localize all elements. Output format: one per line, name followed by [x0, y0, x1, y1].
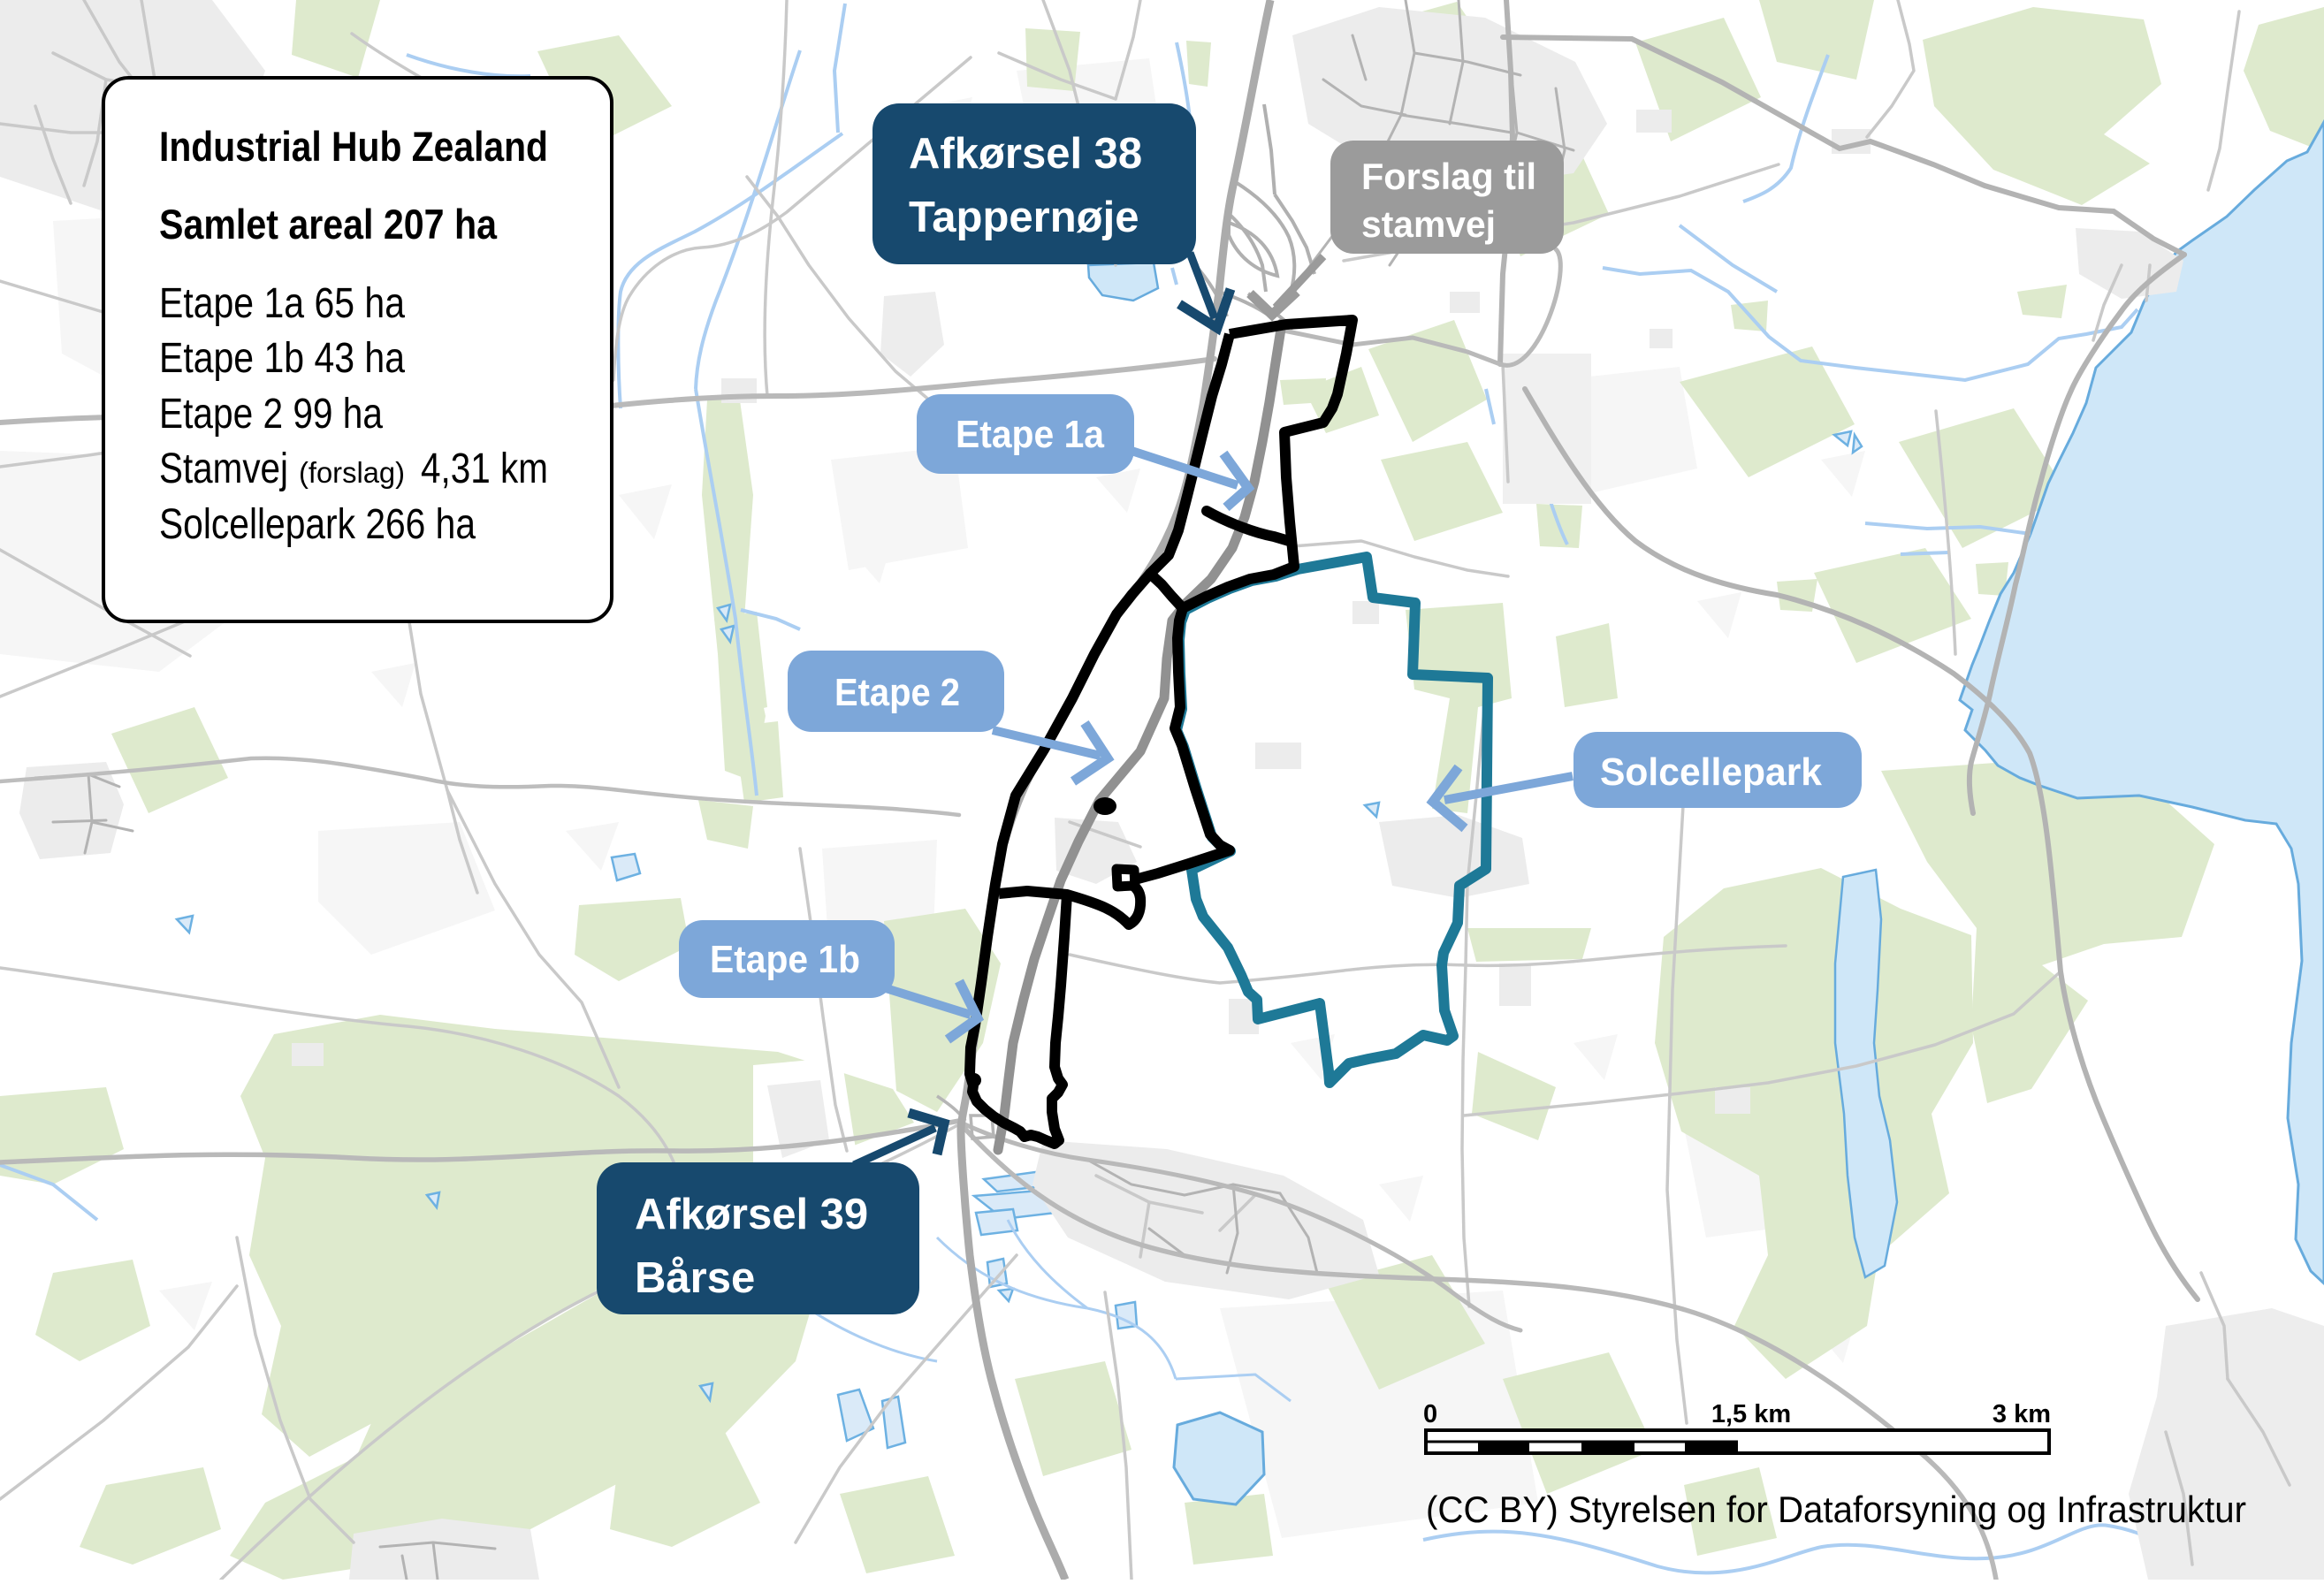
svg-text:Etape 1a: Etape 1a	[956, 413, 1104, 456]
svg-text:Bårse: Bårse	[635, 1254, 755, 1302]
svg-text:Solcellepark: Solcellepark	[1600, 750, 1822, 794]
svg-text:Etape 2 99 ha: Etape 2 99 ha	[159, 391, 383, 438]
svg-text:4,31 km: 4,31 km	[421, 445, 548, 492]
svg-text:Solcellepark 266 ha: Solcellepark 266 ha	[159, 501, 476, 548]
svg-text:1,5 km: 1,5 km	[1711, 1400, 1791, 1428]
svg-text:Etape 1b: Etape 1b	[710, 938, 860, 981]
svg-text:Samlet areal 207 ha: Samlet areal 207 ha	[159, 201, 498, 247]
svg-text:Industrial Hub Zealand: Industrial Hub Zealand	[159, 123, 548, 170]
svg-text:0: 0	[1423, 1400, 1437, 1428]
svg-text:Tappernøje: Tappernøje	[909, 194, 1139, 241]
svg-text:stamvej: stamvej	[1361, 203, 1496, 245]
svg-text:Etape 1a 65 ha: Etape 1a 65 ha	[159, 280, 405, 327]
svg-text:Afkørsel 39: Afkørsel 39	[635, 1191, 868, 1238]
svg-text:Etape 1b 43 ha: Etape 1b 43 ha	[159, 335, 405, 382]
svg-text:Forslag til: Forslag til	[1361, 156, 1536, 197]
svg-text:(CC BY) Styrelsen for Datafors: (CC BY) Styrelsen for Dataforsyning og I…	[1426, 1489, 2246, 1530]
svg-text:Stamvej: Stamvej	[159, 445, 288, 492]
svg-text:3 km: 3 km	[1993, 1400, 2051, 1428]
svg-text:Etape 2: Etape 2	[834, 671, 960, 714]
svg-text:Afkørsel 38: Afkørsel 38	[909, 130, 1142, 178]
svg-text:(forslag): (forslag)	[299, 456, 405, 489]
